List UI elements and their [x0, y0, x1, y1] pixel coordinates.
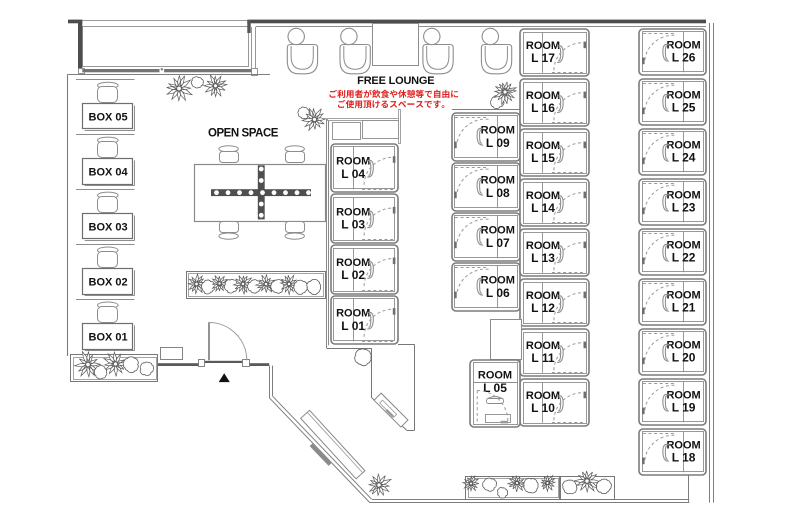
svg-text:L 13: L 13: [531, 251, 555, 265]
svg-text:FREE LOUNGE: FREE LOUNGE: [357, 75, 434, 87]
svg-text:BOX 01: BOX 01: [89, 331, 128, 343]
svg-text:ROOM: ROOM: [666, 290, 700, 302]
svg-text:L 11: L 11: [531, 351, 554, 365]
svg-text:L 09: L 09: [486, 136, 510, 150]
svg-text:ROOM: ROOM: [481, 225, 515, 237]
svg-text:ROOM: ROOM: [666, 390, 700, 402]
svg-text:ROOM: ROOM: [481, 175, 515, 187]
svg-text:ROOM: ROOM: [666, 340, 700, 352]
svg-text:L 22: L 22: [672, 251, 696, 265]
svg-text:ROOM: ROOM: [336, 156, 370, 168]
svg-text:L 15: L 15: [531, 151, 555, 165]
svg-text:L 26: L 26: [672, 51, 696, 65]
svg-text:L 20: L 20: [672, 351, 696, 365]
svg-text:ROOM: ROOM: [478, 369, 512, 381]
svg-text:L 01: L 01: [341, 319, 365, 333]
svg-text:L 07: L 07: [486, 236, 510, 250]
svg-text:L 21: L 21: [672, 301, 696, 315]
svg-text:OPEN SPACE: OPEN SPACE: [208, 128, 279, 140]
svg-text:L 23: L 23: [672, 201, 696, 215]
svg-text:L 08: L 08: [486, 186, 510, 200]
svg-text:ROOM: ROOM: [481, 125, 515, 137]
svg-text:L 06: L 06: [486, 286, 510, 300]
svg-text:L 04: L 04: [341, 167, 365, 181]
svg-text:L 19: L 19: [672, 401, 696, 415]
svg-text:ROOM: ROOM: [526, 190, 560, 202]
svg-text:L 24: L 24: [672, 151, 696, 165]
svg-text:ROOM: ROOM: [526, 90, 560, 102]
svg-text:ROOM: ROOM: [666, 190, 700, 202]
svg-text:L 12: L 12: [531, 301, 555, 315]
svg-text:ROOM: ROOM: [666, 40, 700, 52]
svg-text:ROOM: ROOM: [666, 90, 700, 102]
svg-text:ROOM: ROOM: [481, 275, 515, 287]
svg-text:BOX 05: BOX 05: [89, 112, 128, 124]
svg-text:L 10: L 10: [531, 401, 555, 415]
svg-text:BOX 03: BOX 03: [89, 222, 128, 234]
svg-text:BOX 04: BOX 04: [89, 167, 129, 179]
svg-text:ROOM: ROOM: [336, 206, 370, 218]
svg-text:ROOM: ROOM: [526, 140, 560, 152]
svg-text:L 16: L 16: [531, 101, 555, 115]
svg-text:L 25: L 25: [672, 101, 696, 115]
svg-text:BOX 02: BOX 02: [89, 276, 128, 288]
svg-text:L 17: L 17: [531, 51, 555, 65]
svg-text:ROOM: ROOM: [526, 390, 560, 402]
svg-text:ROOM: ROOM: [526, 290, 560, 302]
svg-text:ROOM: ROOM: [336, 308, 370, 320]
svg-text:ROOM: ROOM: [666, 140, 700, 152]
svg-text:L 18: L 18: [672, 451, 696, 465]
svg-text:ROOM: ROOM: [526, 240, 560, 252]
svg-text:ROOM: ROOM: [526, 340, 560, 352]
svg-text:L 03: L 03: [341, 218, 365, 232]
svg-text:L 14: L 14: [531, 201, 555, 215]
svg-text:L 05: L 05: [483, 381, 507, 395]
svg-text:ROOM: ROOM: [526, 40, 560, 52]
svg-text:ROOM: ROOM: [666, 440, 700, 452]
svg-text:ROOM: ROOM: [666, 240, 700, 252]
svg-text:ROOM: ROOM: [336, 257, 370, 269]
svg-text:L 02: L 02: [341, 268, 365, 282]
